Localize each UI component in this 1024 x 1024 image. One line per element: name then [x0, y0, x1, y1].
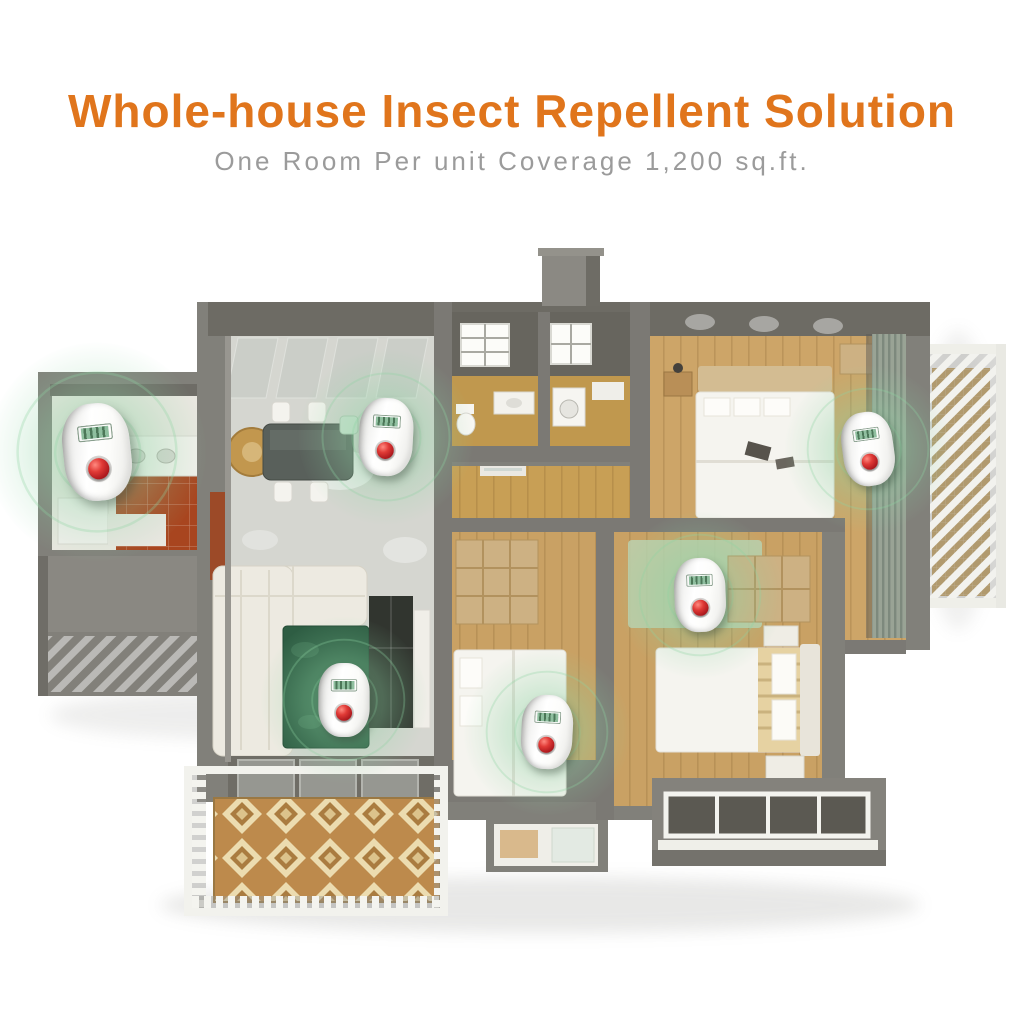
- kitchen-appliance: [58, 498, 108, 544]
- ceiling-spotlight: [685, 314, 715, 330]
- balcony-tile-floor: [214, 798, 440, 902]
- bedroom-middle: [452, 532, 596, 796]
- lamp: [673, 363, 683, 373]
- balcony-bottom-right: [652, 778, 886, 866]
- patio-glass-door: [362, 760, 418, 798]
- bathroom-window: [461, 324, 509, 366]
- bedroom-right: [614, 532, 822, 806]
- master-south-wall: [845, 640, 906, 654]
- master-bed: [696, 366, 834, 518]
- balcony-right-railing: [930, 354, 1002, 604]
- roof-wing: [38, 556, 212, 696]
- kitchen: [38, 372, 224, 564]
- bathroom-window: [551, 324, 591, 364]
- bath-mat: [500, 830, 538, 858]
- bathroom-small: [494, 824, 598, 866]
- nightstand: [664, 372, 692, 396]
- ceiling-spotlight: [813, 318, 843, 334]
- green-rug: [283, 626, 369, 748]
- toilet: [457, 413, 475, 435]
- product-banner: Whole-house Insect Repellent Solution On…: [0, 0, 1024, 1024]
- tv-cabinet: [414, 610, 430, 728]
- master-wardrobe: [866, 334, 906, 638]
- bathrooms: [452, 312, 630, 456]
- toilet: [456, 404, 474, 414]
- bathroom-counter: [592, 382, 624, 400]
- floor-plan: [0, 0, 1024, 1024]
- balcony-right: [926, 344, 1006, 608]
- bed: [454, 650, 566, 796]
- patio-glass-door: [300, 760, 356, 798]
- kitchen-sink: [157, 449, 175, 463]
- bed: [656, 644, 820, 756]
- floor-plan-render: [0, 0, 1024, 1024]
- kitchen-sink: [127, 449, 145, 463]
- kitchen-cabinet: [108, 514, 166, 546]
- living-room: [210, 336, 434, 764]
- nightstand: [764, 626, 798, 646]
- hallway: [452, 466, 630, 518]
- ceiling-spotlight: [749, 316, 779, 332]
- chimney: [538, 248, 604, 306]
- patio-glass-door: [238, 760, 294, 798]
- wardrobe: [728, 556, 810, 622]
- wardrobe: [456, 540, 538, 624]
- west-wall-inner-edge: [225, 336, 231, 762]
- nightstand: [766, 756, 804, 780]
- shower: [552, 828, 594, 862]
